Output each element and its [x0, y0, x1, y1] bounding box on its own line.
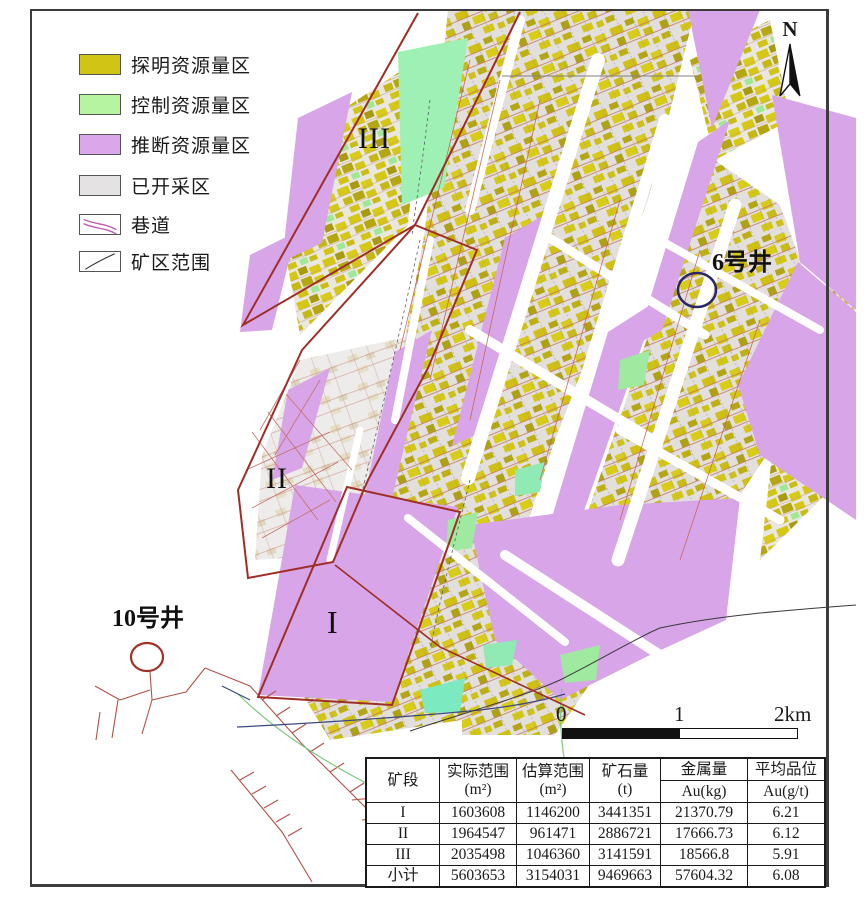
legend-item-inferred: 推断资源量区: [79, 132, 251, 156]
controlled-swatch: [79, 94, 121, 115]
header-name: 实际范围: [447, 763, 509, 780]
header-unit: (m²): [464, 781, 491, 798]
header-unit: (t): [618, 781, 633, 798]
col-header-grade-unit: Au(g/t): [748, 781, 826, 803]
col-header-ore-tonnage: 矿石量 (t): [590, 758, 661, 803]
zone-i-label: I: [327, 604, 339, 641]
scale-bar-ticks: 0 1 2km: [548, 702, 814, 726]
cell-actual-area: 1964547: [440, 824, 517, 845]
zone-ii-label: II: [266, 462, 288, 496]
cell-zone: III: [366, 845, 440, 866]
scale-bar-graphic: [562, 728, 798, 739]
cell-estimated-area: 1146200: [517, 803, 590, 824]
col-header-grade: 平均品位: [748, 758, 826, 781]
cell-metal: 18566.8: [661, 845, 748, 866]
proven-swatch: [79, 54, 121, 75]
cell-zone: 小计: [366, 866, 440, 888]
boundary-swatch: [79, 251, 121, 272]
cell-ore-tonnage: 3141591: [590, 845, 661, 866]
table-row: II 1964547 961471 2886721 17666.73 6.12: [366, 824, 825, 845]
cell-grade: 6.21: [748, 803, 826, 824]
legend-label: 控制资源量区: [131, 91, 251, 118]
scale-tick-2km: 2km: [774, 702, 811, 727]
header-name: 矿石量: [602, 763, 649, 780]
tunnel-swatch: [79, 214, 121, 235]
cell-metal: 57604.32: [661, 866, 748, 888]
header-name: 估算范围: [522, 763, 584, 780]
legend-label: 已开采区: [131, 172, 211, 199]
cell-grade: 5.91: [748, 845, 826, 866]
legend-label: 推断资源量区: [131, 131, 251, 158]
scale-bar-white-segment: [680, 729, 797, 738]
cell-metal: 17666.73: [661, 824, 748, 845]
scale-tick-1: 1: [674, 702, 685, 727]
zone-iii-label: III: [358, 122, 391, 156]
north-arrow-icon: [773, 42, 807, 100]
cell-estimated-area: 961471: [517, 824, 590, 845]
col-header-zone: 矿段: [366, 758, 440, 803]
cell-ore-tonnage: 2886721: [590, 824, 661, 845]
inferred-swatch: [79, 134, 121, 155]
scale-tick-0: 0: [556, 702, 567, 727]
cell-actual-area: 2035498: [440, 845, 517, 866]
legend-item-boundary: 矿区范围: [79, 249, 211, 273]
col-header-estimated-area: 估算范围 (m²): [517, 758, 590, 803]
legend-item-mined: 已开采区: [79, 173, 211, 197]
legend-label: 矿区范围: [131, 248, 211, 275]
cell-zone: II: [366, 824, 440, 845]
map-page: 探明资源量区 控制资源量区 推断资源量区 已开采区 巷道 矿区范围: [0, 0, 864, 899]
table-row-total: 小计 5603653 3154031 9469663 57604.32 6.08: [366, 866, 825, 888]
cell-estimated-area: 1046360: [517, 845, 590, 866]
header-unit: (m²): [539, 781, 566, 798]
cell-ore-tonnage: 9469663: [590, 866, 661, 888]
table-row: I 1603608 1146200 3441351 21370.79 6.21: [366, 803, 825, 824]
table-row: III 2035498 1046360 3141591 18566.8 5.91: [366, 845, 825, 866]
cell-zone: I: [366, 803, 440, 824]
col-header-metal: 金属量: [661, 758, 748, 781]
scale-bar: 0 1 2km: [548, 702, 814, 739]
col-header-actual-area: 实际范围 (m²): [440, 758, 517, 803]
legend-item-controlled: 控制资源量区: [79, 92, 251, 116]
cell-ore-tonnage: 3441351: [590, 803, 661, 824]
scale-bar-black-segment: [563, 729, 680, 738]
legend-item-tunnel: 巷道: [79, 212, 171, 236]
well-10-label: 10号井: [112, 598, 184, 633]
mined-swatch: [79, 175, 121, 196]
cell-actual-area: 5603653: [440, 866, 517, 888]
cell-estimated-area: 3154031: [517, 866, 590, 888]
legend-label: 探明资源量区: [131, 51, 251, 78]
north-arrow: N: [766, 18, 814, 100]
legend-item-proven: 探明资源量区: [79, 52, 251, 76]
cell-metal: 21370.79: [661, 803, 748, 824]
cell-grade: 6.12: [748, 824, 826, 845]
resource-table: 矿段 实际范围 (m²) 估算范围 (m²) 矿石量 (t) 金属量 平均品位 …: [365, 757, 826, 888]
legend-label: 巷道: [131, 211, 171, 238]
cell-actual-area: 1603608: [440, 803, 517, 824]
cell-grade: 6.08: [748, 866, 826, 888]
north-label: N: [766, 18, 814, 40]
col-header-metal-unit: Au(kg): [661, 781, 748, 803]
well-6-label: 6号井: [712, 242, 772, 277]
